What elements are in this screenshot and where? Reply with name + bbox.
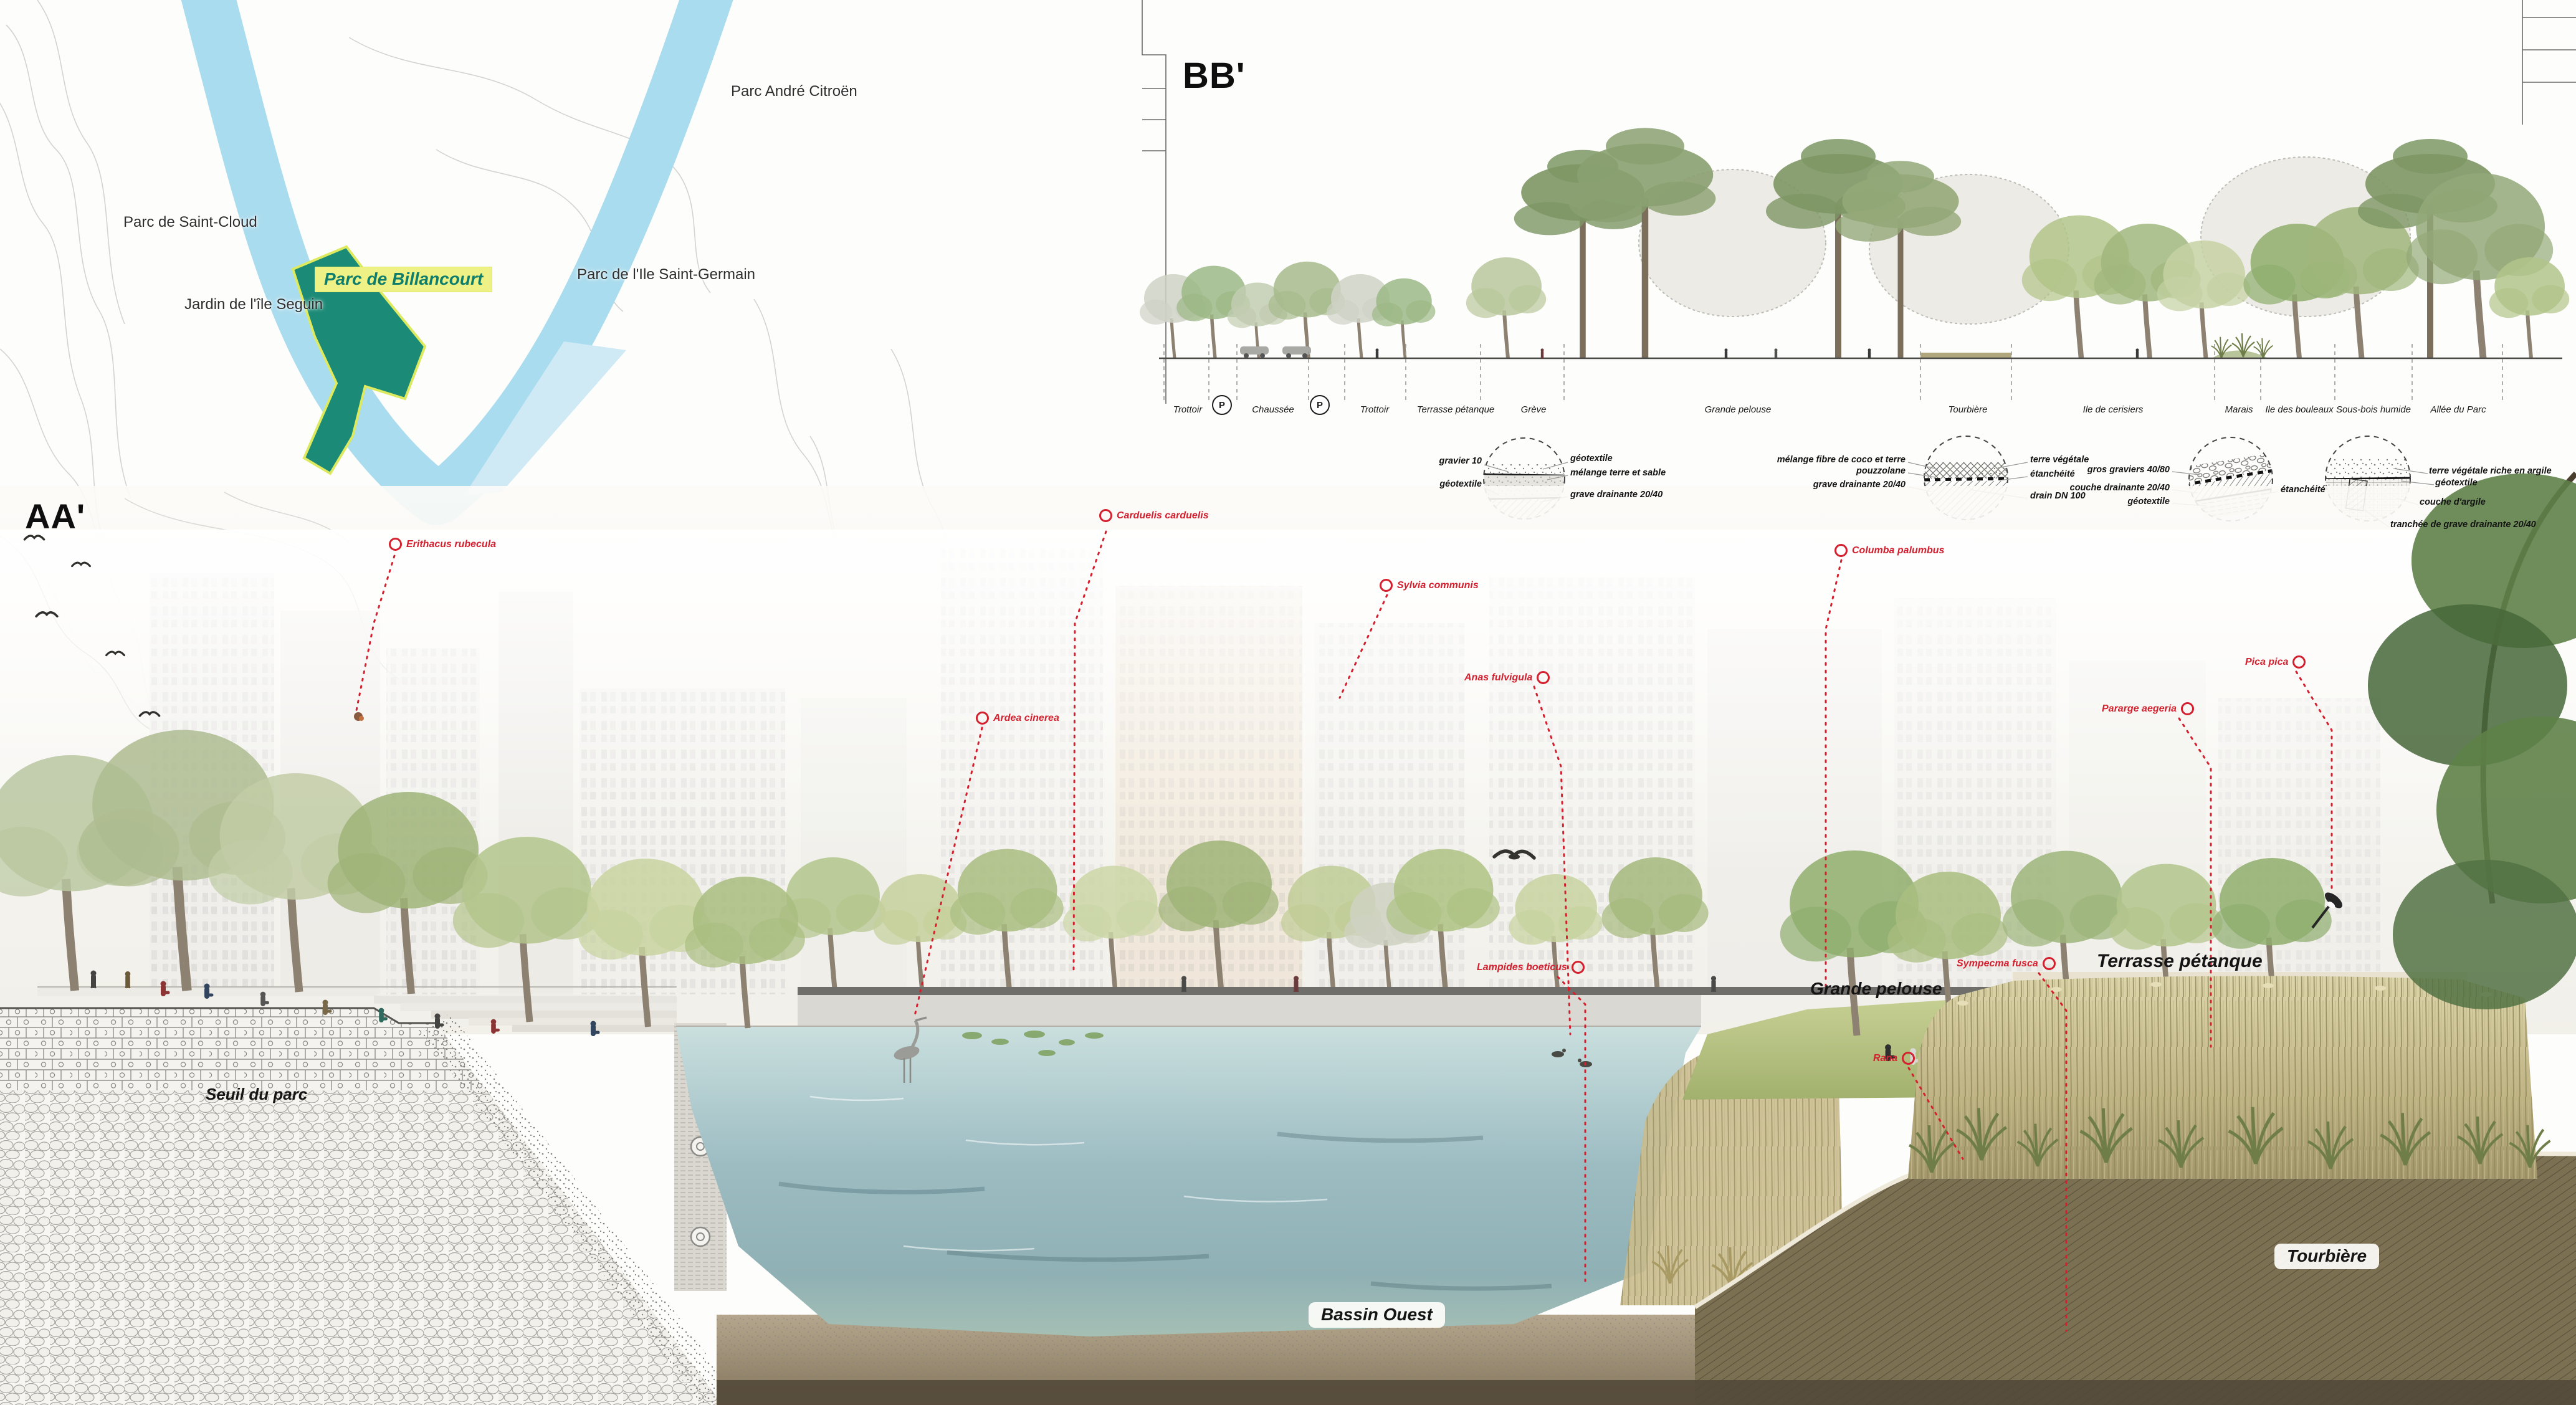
species-marker-icon [976, 712, 989, 725]
species-marker-icon [2292, 655, 2306, 669]
map-label-parc-ile-saint-germain: Parc de l'Ile Saint-Germain [577, 267, 755, 283]
bb-zone-grande-pelouse: Grande pelouse [1705, 405, 1772, 416]
species-label-carduelis-carduelis: Carduelis carduelis [1099, 509, 1209, 522]
species-label-anas-fulvigula: Anas fulvigula [1464, 671, 1550, 684]
place-label-seuil-du-parc: Seuil du parc [206, 1085, 307, 1103]
detail-label: terre végétale riche en argile [2429, 467, 2552, 477]
detail-label: étanchéité [2030, 470, 2075, 480]
map-label-parc-de-saint-cloud: Parc de Saint-Cloud [123, 214, 257, 231]
place-label-grande-pelouse: Grande pelouse [1810, 979, 1942, 999]
section-aa-title: AA' [25, 497, 85, 536]
map-label-jardin-ile-seguin: Jardin de l'île Seguin [184, 297, 323, 313]
species-label-lampides-boeticus: Lampides boeticus [1477, 961, 1585, 974]
place-label-tourbiere: Tourbière [2274, 1244, 2379, 1269]
species-label-columba-palumbus: Columba palumbus [1834, 544, 1944, 557]
species-label-pica-pica: Pica pica [2245, 655, 2306, 669]
label-layer: AA' BB' Parc André Citroën Parc de Saint… [0, 0, 2576, 1405]
parking-badge-icon: P [1310, 395, 1330, 415]
species-text: Pica pica [2245, 657, 2288, 668]
species-label-ardea-cinerea: Ardea cinerea [976, 712, 1059, 725]
bb-zone-marais: Marais [2225, 405, 2253, 416]
bb-zone-chaussee: Chaussée [1252, 405, 1294, 416]
detail-label: couche d'argile [2420, 498, 2486, 508]
species-text: Sympecma fusca [1957, 958, 2038, 969]
detail-label: géotextile [1570, 454, 1613, 464]
species-text: Columba palumbus [1852, 545, 1944, 556]
detail-label: géotextile [2435, 479, 2478, 488]
species-marker-icon [1572, 961, 1585, 974]
detail-label: gros graviers 40/80 [2087, 465, 2170, 475]
species-text: Carduelis carduelis [1117, 510, 1209, 522]
place-label-terrasse-petanque: Terrasse pétanque [2097, 951, 2263, 971]
species-marker-icon [1099, 509, 1112, 522]
detail-label: mélange terre et sable [1570, 469, 1666, 479]
detail-label: terre végétale [2030, 455, 2089, 465]
species-text: Ardea cinerea [993, 713, 1059, 724]
detail-label: tranchée de grave drainante 20/40 [2390, 520, 2536, 530]
detail-label: grave drainante 20/40 [1570, 490, 1662, 500]
species-text: Rana [1873, 1053, 1897, 1064]
detail-label: grave drainante 20/40 [1813, 480, 1906, 490]
place-label-bassin-ouest: Bassin Ouest [1309, 1302, 1445, 1328]
bb-zone-tourbiere: Tourbière [1949, 405, 1988, 416]
species-marker-icon [2181, 702, 2194, 715]
species-label-sympecma-fusca: Sympecma fusca [1957, 957, 2056, 970]
bb-zone-trottoir-1: Trottoir [1173, 405, 1202, 416]
parking-badge-icon: P [1212, 395, 1232, 415]
species-marker-icon [1380, 579, 1393, 592]
species-marker-icon [1537, 671, 1550, 684]
species-marker-icon [2043, 957, 2056, 970]
bb-zone-sous-bois-humide: Sous-bois humide [2336, 405, 2411, 416]
species-label-pararge-aegeria: Pararge aegeria [2102, 702, 2194, 715]
bb-zone-ile-de-cerisiers: Ile de cerisiers [2083, 405, 2144, 416]
species-label-sylvia-communis: Sylvia communis [1380, 579, 1479, 592]
bb-zone-allee-du-parc: Allée du Parc [2430, 405, 2486, 416]
species-marker-icon [389, 538, 402, 551]
species-text: Sylvia communis [1397, 580, 1479, 591]
detail-label: gravier 10 [1439, 457, 1482, 467]
bb-zone-trottoir-2: Trottoir [1360, 405, 1389, 416]
species-marker-icon [1902, 1052, 1915, 1065]
bb-zone-terrasse-petanque: Terrasse pétanque [1417, 405, 1495, 416]
species-text: Lampides boeticus [1477, 962, 1567, 973]
detail-label: couche drainante 20/40 [2070, 483, 2170, 493]
species-text: Pararge aegeria [2102, 703, 2177, 715]
bb-zone-greve: Grève [1521, 405, 1547, 416]
bb-zone-ile-des-bouleaux: Ile des bouleaux [2265, 405, 2333, 416]
presentation-board: AA' BB' Parc André Citroën Parc de Saint… [0, 0, 2576, 1405]
species-marker-icon [1834, 544, 1848, 557]
detail-label: géotextile [2127, 497, 2170, 507]
map-label-parc-de-billancourt: Parc de Billancourt [315, 267, 492, 292]
species-label-erithacus-rubecula: Erithacus rubecula [389, 538, 496, 551]
section-bb-title: BB' [1183, 56, 1246, 96]
detail-label: mélange fibre de coco et terre [1777, 455, 1906, 465]
species-text: Anas fulvigula [1464, 672, 1532, 683]
species-text: Erithacus rubecula [406, 539, 496, 550]
detail-label: pouzzolane [1856, 467, 1906, 477]
detail-label: étanchéité [2281, 485, 2326, 495]
map-label-parc-andre-citroen: Parc André Citroën [731, 83, 857, 100]
species-label-rana: Rana [1873, 1052, 1915, 1065]
detail-label: géotextile [1439, 480, 1482, 490]
